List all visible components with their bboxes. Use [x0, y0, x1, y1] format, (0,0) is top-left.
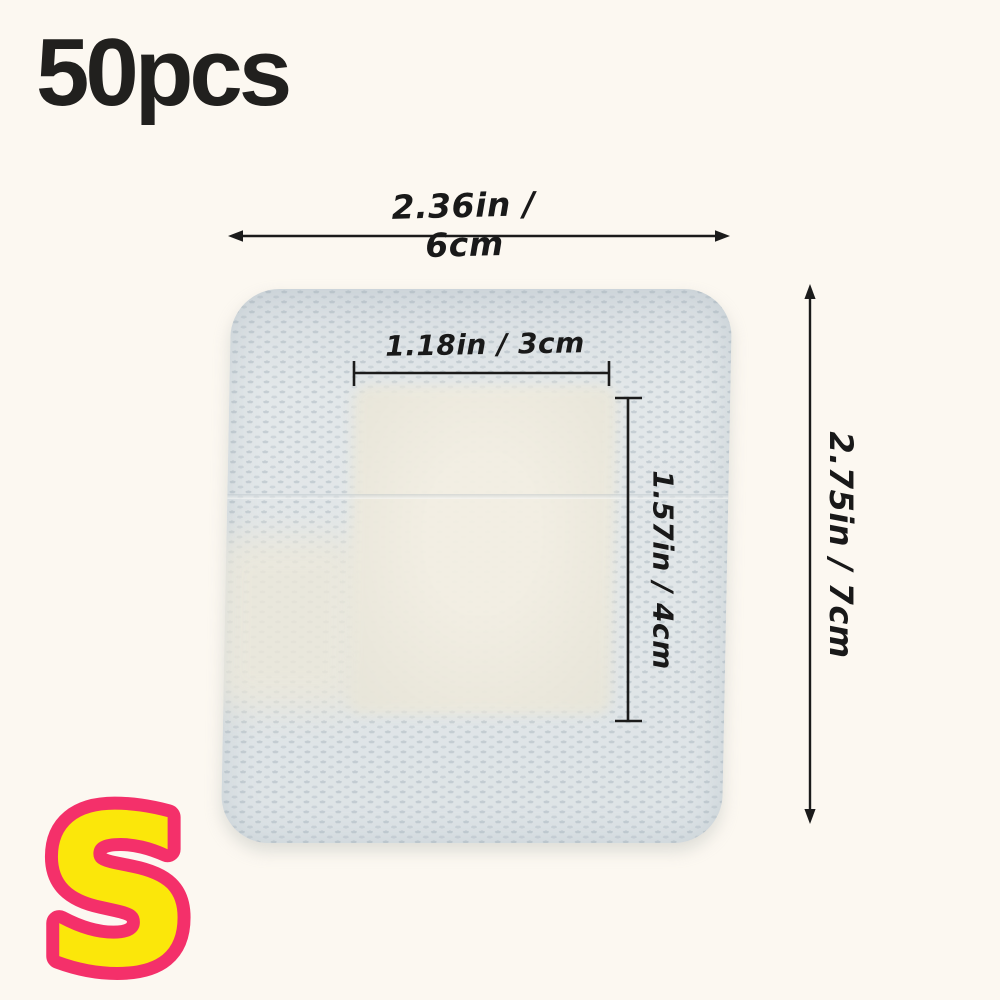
pad-width-line-icon [354, 361, 609, 386]
size-letter-group: S [43, 782, 193, 997]
outer-height-arrow-icon [804, 284, 815, 824]
pad-height-line-icon [615, 398, 642, 721]
outer-width-dimension-label: 2.36in / 6cm [347, 183, 581, 267]
product-image-canvas: 50pcs 2.36in / 6cm 1.1 [0, 0, 1000, 1000]
outer-height-dimension-label: 2.75in / 7cm [822, 431, 860, 658]
size-letter: S [43, 782, 193, 997]
size-badge: S [25, 782, 205, 997]
pad-height-dimension-label: 1.57in / 4cm [647, 470, 680, 670]
pad-width-dimension-label: 1.18in / 3cm [378, 326, 593, 363]
